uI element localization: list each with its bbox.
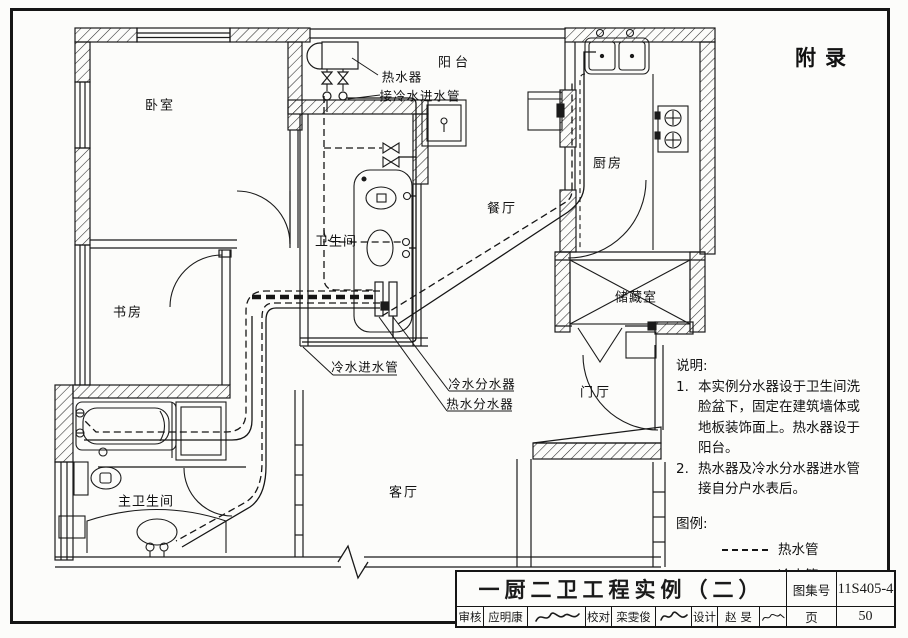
signature-scribble xyxy=(532,608,582,626)
title-block-bottom-row: 审核 应明康 校对 栾雯俊 设计 赵 旻 页 50 xyxy=(457,607,894,626)
note-item-2: 2. 热水器及冷水分水器进水管 接自分户水表后。 xyxy=(676,459,898,500)
hot-water-pipes xyxy=(84,80,572,541)
break-symbol xyxy=(338,546,368,578)
annotation-cold-water-inlet: 冷水进水管 xyxy=(331,357,399,376)
drawing-title: 一厨二卫工程实例（二） xyxy=(457,572,786,606)
notes-heading: 说明: xyxy=(676,356,898,377)
page-label: 页 xyxy=(786,607,836,626)
note-1-text: 本实例分水器设于卫生间洗 脸盆下，固定在建筑墙体或 地板装饰面上。热水器设于 阳… xyxy=(698,377,860,459)
legend-hot-row: 热水管 xyxy=(722,540,898,560)
annotation-cold-water-manifold: 冷水分水器 xyxy=(448,374,516,393)
room-label-kitchen: 厨房 xyxy=(593,153,623,172)
title-block: 一厨二卫工程实例（二） 图集号 11S405-4 审核 应明康 校对 栾雯俊 设… xyxy=(455,570,896,628)
designer-signature xyxy=(759,607,786,626)
room-label-foyer: 门厅 xyxy=(580,382,612,401)
appendix-tab: 附录 xyxy=(795,42,855,72)
room-label-bedroom: 卧室 xyxy=(145,95,175,114)
room-label-balcony: 阳台 xyxy=(438,52,472,71)
annotation-connect-cold-inlet: 接冷水进水管 xyxy=(379,86,460,105)
cold-water-pipes xyxy=(84,52,596,547)
note-item-1: 1. 本实例分水器设于卫生间洗 脸盆下，固定在建筑墙体或 地板装饰面上。热水器设… xyxy=(676,377,898,459)
door-swings xyxy=(170,180,658,516)
signature-scribble xyxy=(658,608,690,626)
note-2-text: 热水器及冷水分水器进水管 接自分户水表后。 xyxy=(698,459,860,500)
proofreader-name: 栾雯俊 xyxy=(611,607,655,626)
water-manifolds xyxy=(375,282,397,316)
legend-heading: 图例: xyxy=(676,514,898,535)
designer-name: 赵 旻 xyxy=(717,607,759,626)
proofreader-label: 校对 xyxy=(585,607,611,626)
reviewer-label: 审核 xyxy=(457,607,483,626)
title-block-top-row: 一厨二卫工程实例（二） 图集号 11S405-4 xyxy=(457,572,894,607)
atlas-sheet: 附录 卧室 书房 主卫生间 卫生间 阳台 餐厅 厨房 储藏室 门厅 客厅 热水器… xyxy=(0,0,908,638)
legend-hot-label: 热水管 xyxy=(778,540,819,561)
room-label-bathroom: 卫生间 xyxy=(315,231,357,250)
washing-machine xyxy=(528,92,564,130)
atlas-number: 11S405-4 xyxy=(836,572,894,606)
reviewer-signature xyxy=(527,607,585,626)
reviewer-name: 应明康 xyxy=(483,607,527,626)
page-number: 50 xyxy=(836,607,894,626)
designer-label: 设计 xyxy=(691,607,717,626)
signature-scribble xyxy=(760,608,786,626)
room-label-study: 书房 xyxy=(113,302,143,321)
balcony-sink xyxy=(422,100,466,146)
notes-block: 说明: 1. 本实例分水器设于卫生间洗 脸盆下，固定在建筑墙体或 地板装饰面上。… xyxy=(676,356,898,586)
annotation-water-heater: 热水器 xyxy=(382,67,423,86)
room-label-living: 客厅 xyxy=(389,482,419,501)
master-bath-fixtures xyxy=(59,402,226,557)
hot-pipe-line-sample xyxy=(722,549,768,551)
annotation-hot-water-manifold: 热水分水器 xyxy=(446,394,514,413)
room-label-storage: 储藏室 xyxy=(615,287,657,306)
atlas-number-label: 图集号 xyxy=(786,572,836,606)
note-1-number: 1. xyxy=(676,377,698,459)
proofreader-signature xyxy=(655,607,691,626)
room-label-master-bathroom: 主卫生间 xyxy=(118,491,174,510)
note-2-number: 2. xyxy=(676,459,698,500)
kitchen-fixtures xyxy=(580,30,688,251)
room-label-dining: 餐厅 xyxy=(487,198,517,217)
